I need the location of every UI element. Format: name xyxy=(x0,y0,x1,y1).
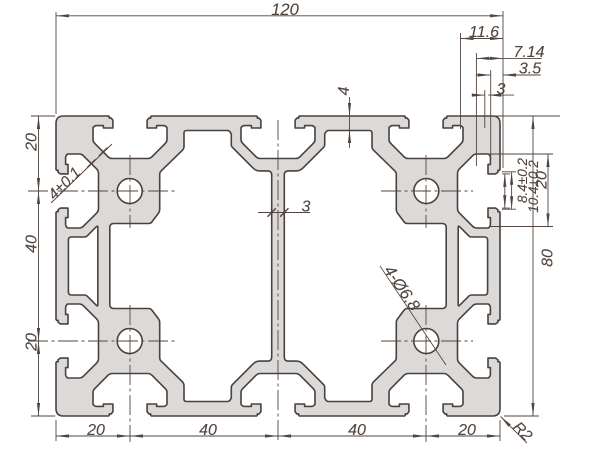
svg-text:20: 20 xyxy=(534,171,551,190)
svg-text:20: 20 xyxy=(24,133,41,152)
svg-text:11.6: 11.6 xyxy=(469,24,499,41)
svg-text:40: 40 xyxy=(199,422,217,439)
svg-text:40: 40 xyxy=(24,235,41,253)
svg-text:3.5: 3.5 xyxy=(519,61,541,78)
svg-text:20: 20 xyxy=(24,333,41,352)
svg-text:40: 40 xyxy=(348,422,366,439)
svg-text:4: 4 xyxy=(336,86,353,95)
svg-text:20: 20 xyxy=(457,422,476,439)
svg-text:80: 80 xyxy=(540,249,557,267)
svg-text:3: 3 xyxy=(302,198,311,215)
svg-text:120: 120 xyxy=(271,1,299,19)
svg-text:20: 20 xyxy=(86,422,105,439)
svg-text:7.14: 7.14 xyxy=(513,44,544,61)
svg-text:3: 3 xyxy=(497,81,506,98)
